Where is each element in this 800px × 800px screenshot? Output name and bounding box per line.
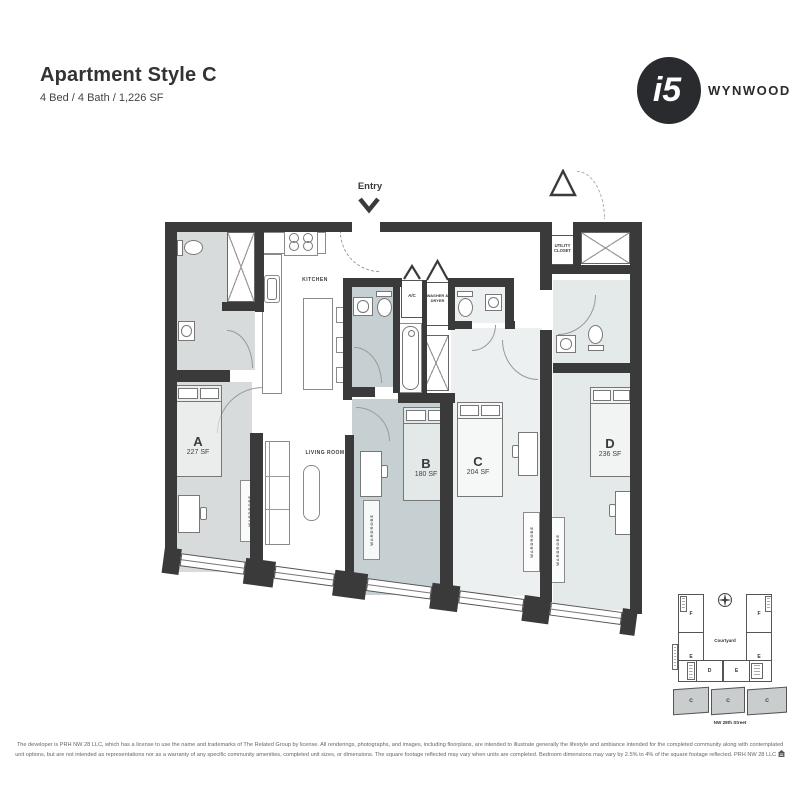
wall	[450, 278, 513, 287]
entry-arrow-icon	[357, 197, 381, 214]
brand-name: WYNWOOD	[708, 83, 791, 98]
washer-dryer-door-peak	[426, 258, 449, 281]
wall	[553, 363, 630, 373]
wall	[345, 435, 354, 581]
shower-a	[227, 232, 255, 302]
chair	[381, 465, 388, 478]
wall	[222, 302, 262, 311]
entry-door-arc	[340, 232, 380, 272]
keyplan-unit-c1: C	[673, 687, 709, 716]
keyplan-storage-box	[751, 663, 763, 679]
kitchen-label: KITCHEN	[285, 277, 345, 283]
wall	[440, 403, 453, 590]
window	[549, 603, 622, 625]
toilet	[376, 291, 392, 317]
wall	[577, 222, 637, 232]
sink	[485, 294, 502, 311]
wall	[343, 278, 352, 400]
wall	[332, 570, 368, 600]
entry-label: Entry	[348, 181, 392, 192]
wall	[162, 547, 182, 575]
ac-door-peak	[403, 264, 421, 280]
bedroom-c-label: C 204 SF	[448, 455, 508, 476]
kitchen-island	[303, 298, 333, 390]
wall	[573, 265, 637, 274]
bed-d	[590, 387, 633, 477]
desk	[518, 432, 538, 476]
desk	[178, 495, 200, 533]
equal-housing-icon	[778, 750, 785, 757]
floorplan-page: Apartment Style C 4 Bed / 4 Bath / 1,226…	[0, 0, 800, 800]
wall	[422, 280, 427, 401]
disclaimer-line1: The developer is PRH NW 28 LLC, which ha…	[14, 741, 786, 750]
page-title: Apartment Style C	[40, 64, 217, 87]
window	[458, 590, 524, 611]
wall	[620, 608, 638, 636]
desk	[360, 451, 382, 497]
stove	[284, 228, 318, 256]
wall	[450, 321, 472, 329]
coffee-table	[303, 465, 320, 521]
wall	[380, 222, 548, 232]
sink	[178, 321, 195, 341]
toilet	[457, 291, 473, 317]
sink	[556, 335, 576, 353]
keyplan-unit-c2: C	[711, 687, 745, 715]
compass-icon	[717, 592, 733, 608]
disclaimer-line2: unit options, but are not intended as re…	[15, 752, 776, 758]
bed-c	[457, 402, 503, 497]
keyplan-stair-box	[765, 596, 772, 612]
sofa	[265, 441, 290, 545]
wall	[343, 387, 375, 397]
i5-logo: i5	[637, 57, 701, 124]
toilet	[177, 240, 203, 256]
street-label: NW 28th Street	[685, 720, 775, 725]
bathtub	[399, 323, 422, 393]
wall	[250, 433, 263, 565]
disclaimer: The developer is PRH NW 28 LLC, which ha…	[14, 741, 786, 760]
wall	[243, 558, 276, 588]
utility-door-leaf	[548, 169, 578, 197]
chair	[609, 504, 616, 517]
wall	[630, 222, 642, 614]
washer-dryer-closet	[426, 282, 449, 326]
floorplan: Entry KITCHEN	[160, 195, 680, 635]
keyplan-unit-d-bottom: D	[696, 660, 723, 682]
window	[274, 566, 335, 587]
wall	[429, 583, 460, 612]
wall	[165, 370, 230, 382]
i5-logo-mark: i5	[653, 71, 681, 110]
wall	[505, 278, 514, 329]
wardrobe-d: WARDROBE	[550, 517, 565, 583]
ac-label: A/C	[401, 293, 423, 298]
wall	[393, 285, 400, 393]
wall	[165, 222, 177, 552]
utility-closet-label: UTILITY CLOSET	[549, 243, 576, 254]
wall	[521, 595, 551, 624]
kitchen-sink	[264, 275, 280, 303]
wall	[255, 222, 264, 312]
utility-door-arc	[577, 171, 605, 219]
keyplan-unit-e-bottom: E	[723, 660, 750, 682]
bed-a	[175, 385, 222, 477]
keyplan-service-box	[687, 662, 695, 680]
keyplan-stair-box	[672, 644, 678, 670]
sink	[353, 297, 373, 316]
bedroom-a-label: A 227 SF	[168, 435, 228, 456]
window	[366, 578, 432, 599]
keyplan-stair-box	[680, 596, 687, 612]
shower-d	[581, 232, 630, 264]
keyplan: F E F E D E Courtyard C C C NW 28th Stre…	[670, 578, 796, 744]
chair	[512, 445, 519, 458]
courtyard-label: Courtyard	[698, 638, 752, 643]
wardrobe-c: WARDROBE	[523, 512, 540, 572]
ac-closet	[401, 280, 423, 318]
wall	[540, 222, 552, 290]
keyplan-unit-c3: C	[747, 687, 787, 716]
page-subtitle: 4 Bed / 4 Bath / 1,226 SF	[40, 92, 164, 104]
wardrobe-b: WARDROBE	[363, 500, 380, 560]
washer-dryer-label: WASHER & DRYER	[426, 293, 449, 303]
chair	[200, 507, 207, 520]
window	[180, 553, 246, 574]
toilet	[588, 325, 604, 351]
wall	[540, 330, 552, 602]
